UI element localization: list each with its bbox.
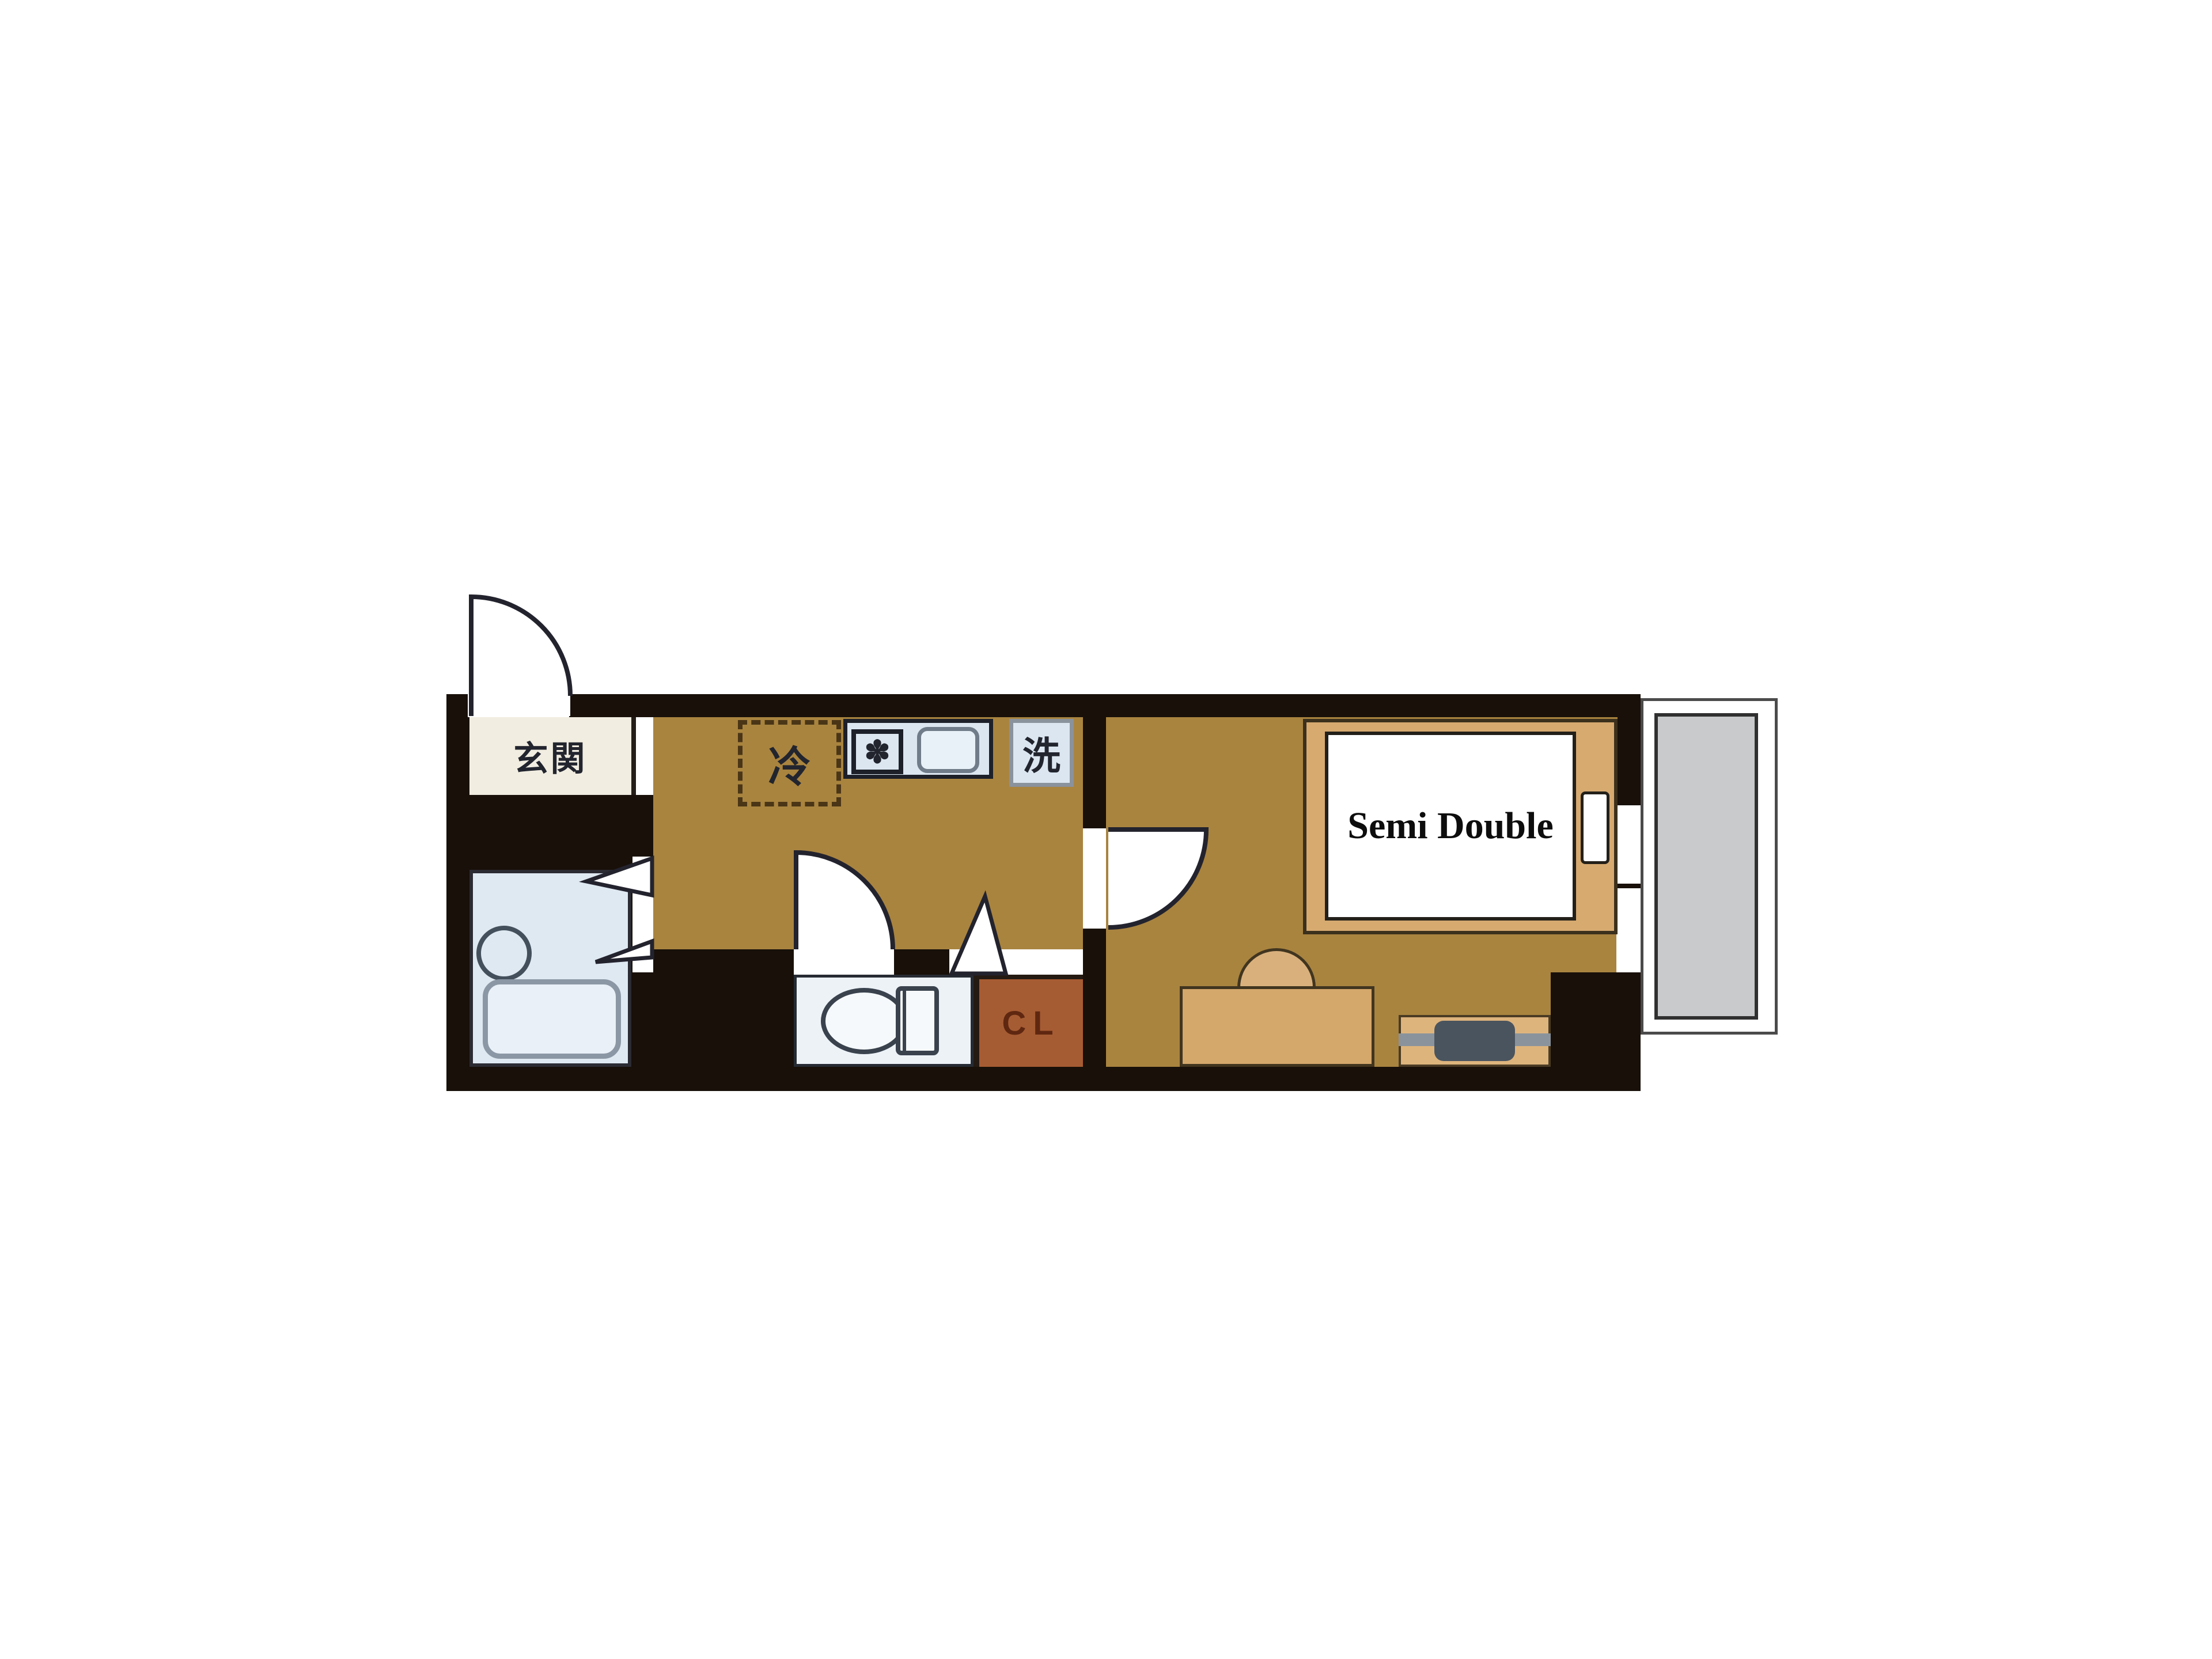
bottom-wall <box>446 1067 1551 1091</box>
balcony <box>1654 713 1758 1020</box>
toilet-door-opening <box>794 949 894 975</box>
sink-icon <box>917 727 979 773</box>
bath-stool-icon <box>476 926 532 981</box>
genkan-kitchen-gap <box>636 717 653 795</box>
toilet-tank-line <box>903 990 906 1052</box>
left-wall <box>446 694 469 1091</box>
genkan-bath-wall <box>469 795 653 870</box>
closet: CL <box>974 975 1083 1067</box>
bed-mattress: Semi Double <box>1325 732 1576 921</box>
bed-label: Semi Double <box>1347 804 1554 848</box>
closet-door-opening <box>949 949 1083 975</box>
pillow-icon <box>1581 791 1609 864</box>
bathtub-icon <box>483 979 621 1059</box>
corridor-wall-block <box>653 949 794 1067</box>
toilet-icon <box>821 988 907 1054</box>
closet-label: CL <box>1002 1004 1060 1043</box>
bath-door-opening <box>632 857 653 972</box>
entrance-opening <box>468 694 569 717</box>
divider-wall-lower <box>1083 929 1106 1067</box>
refrigerator-label: 冷 <box>768 733 811 794</box>
entrance-room: 玄関 <box>469 717 631 795</box>
window-upper-sash <box>1616 805 1642 884</box>
window-lower-sash <box>1616 888 1642 972</box>
washing-machine-box: 洗 <box>1009 719 1074 787</box>
top-wall <box>446 694 1641 717</box>
corner-wall-jog <box>1551 972 1641 1091</box>
washer-label: 洗 <box>1022 725 1060 781</box>
stove-icon: ✽ <box>851 729 903 774</box>
floor-plan-canvas: 玄関 冷 ✽ 洗 CL Semi Double <box>0 0 2212 1659</box>
burner-symbol: ✽ <box>864 734 890 770</box>
refrigerator-box: 冷 <box>738 720 841 806</box>
main-room-door-opening <box>1083 828 1106 929</box>
genkan-kitchen-line <box>631 717 636 795</box>
divider-wall-upper <box>1083 717 1106 828</box>
tv-icon <box>1434 1021 1515 1061</box>
entrance-label: 玄関 <box>514 731 588 781</box>
desk <box>1180 986 1374 1067</box>
